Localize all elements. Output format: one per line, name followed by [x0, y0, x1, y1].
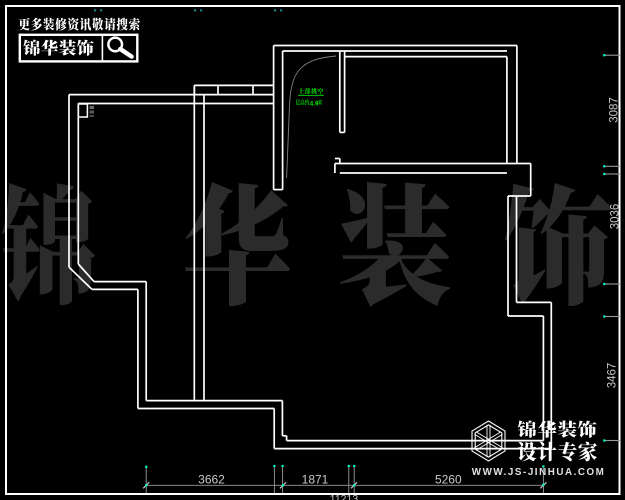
svg-text:11213: 11213: [330, 493, 359, 500]
svg-text:WWW.JS-JINHUA.COM: WWW.JS-JINHUA.COM: [472, 467, 606, 478]
svg-text:1871: 1871: [302, 473, 329, 487]
svg-text:3467: 3467: [607, 363, 619, 389]
svg-text:3662: 3662: [198, 473, 225, 487]
svg-text:4.9: 4.9: [310, 100, 319, 107]
svg-text:3036: 3036: [610, 204, 622, 230]
svg-text:5260: 5260: [435, 473, 462, 487]
svg-text:3087: 3087: [609, 97, 621, 123]
